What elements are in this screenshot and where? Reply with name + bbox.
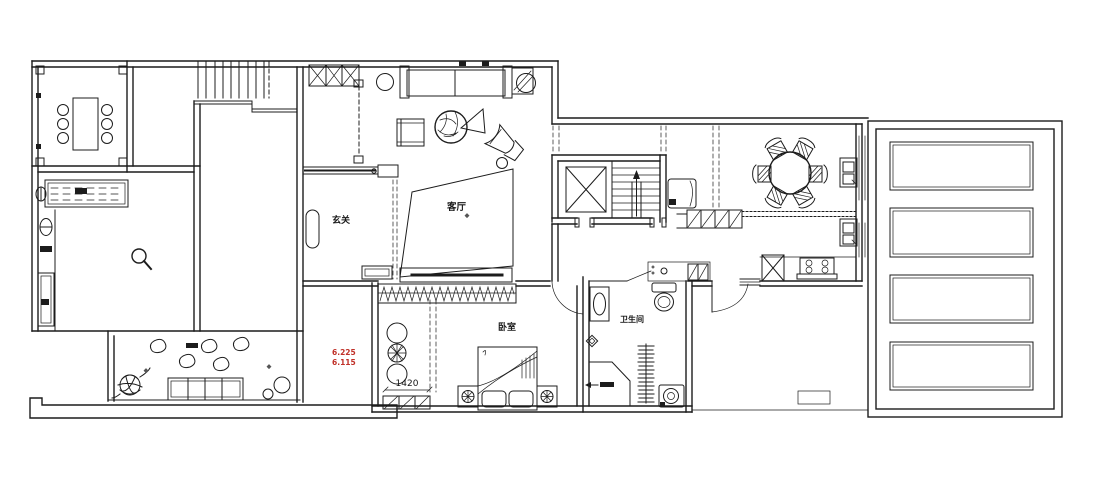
courtyard-garden <box>108 331 300 401</box>
hatched-shelf <box>383 396 430 409</box>
room-label-bathroom: 卫生间 <box>620 314 644 324</box>
wardrobe <box>378 284 516 303</box>
dining-table-rect <box>58 98 113 150</box>
room-label-bedroom: 卧室 <box>498 321 516 333</box>
kitchen <box>648 255 856 404</box>
vanity-sink <box>590 287 609 321</box>
elevator <box>566 161 612 218</box>
round-dining-table <box>769 152 811 194</box>
dining-chair <box>753 165 771 183</box>
plant-icon <box>112 368 150 398</box>
armchair <box>397 119 424 146</box>
deck-module <box>890 342 1033 390</box>
fridge-xbox <box>762 255 784 281</box>
elevation-upper: 6.225 <box>332 348 356 357</box>
dining-chair <box>809 165 827 183</box>
gas-stove <box>797 258 837 279</box>
nightstand-left <box>458 386 478 407</box>
rug <box>400 169 513 277</box>
base-strip <box>30 398 397 418</box>
wall-unit-upper <box>840 158 857 187</box>
bedroom: 1420 <box>378 282 583 410</box>
wall-unit-lower <box>840 219 857 246</box>
sideboard-hatched <box>677 210 742 228</box>
coffee-table <box>435 109 485 143</box>
magnifier-symbol <box>132 249 151 269</box>
deck-module <box>890 142 1033 190</box>
deck-module <box>890 275 1033 323</box>
nightstand-right <box>537 386 557 407</box>
stair-core <box>552 126 666 281</box>
tv-console <box>362 266 512 282</box>
washing-machine <box>659 385 684 407</box>
deck <box>868 121 1062 417</box>
exterior-walls <box>32 61 868 412</box>
deck-module <box>890 208 1033 257</box>
lounge-chair <box>668 179 696 208</box>
toilet <box>652 283 676 311</box>
room-label-living: 客厅 <box>446 201 467 213</box>
towel-radiator <box>638 344 654 403</box>
room-top-left <box>32 61 200 172</box>
staircase-top <box>194 62 297 112</box>
left-counter-hatched <box>36 180 128 207</box>
fan-decor <box>388 344 406 362</box>
dining-area <box>668 126 865 257</box>
foyer <box>303 65 398 279</box>
room-label-foyer: 玄关 <box>332 214 350 226</box>
stairs <box>612 168 660 218</box>
elevation-lower: 6.115 <box>332 358 356 367</box>
stool <box>497 158 508 169</box>
plant-circle-left <box>377 74 394 91</box>
bathroom <box>585 271 684 407</box>
dim-text: 1420 <box>396 379 419 389</box>
left-strip-fixtures <box>38 210 55 330</box>
bed <box>478 347 537 410</box>
living-room <box>362 61 536 282</box>
mat-rect <box>798 391 830 404</box>
shower <box>585 362 630 406</box>
floor-plan-canvas: 1420 <box>0 0 1095 484</box>
